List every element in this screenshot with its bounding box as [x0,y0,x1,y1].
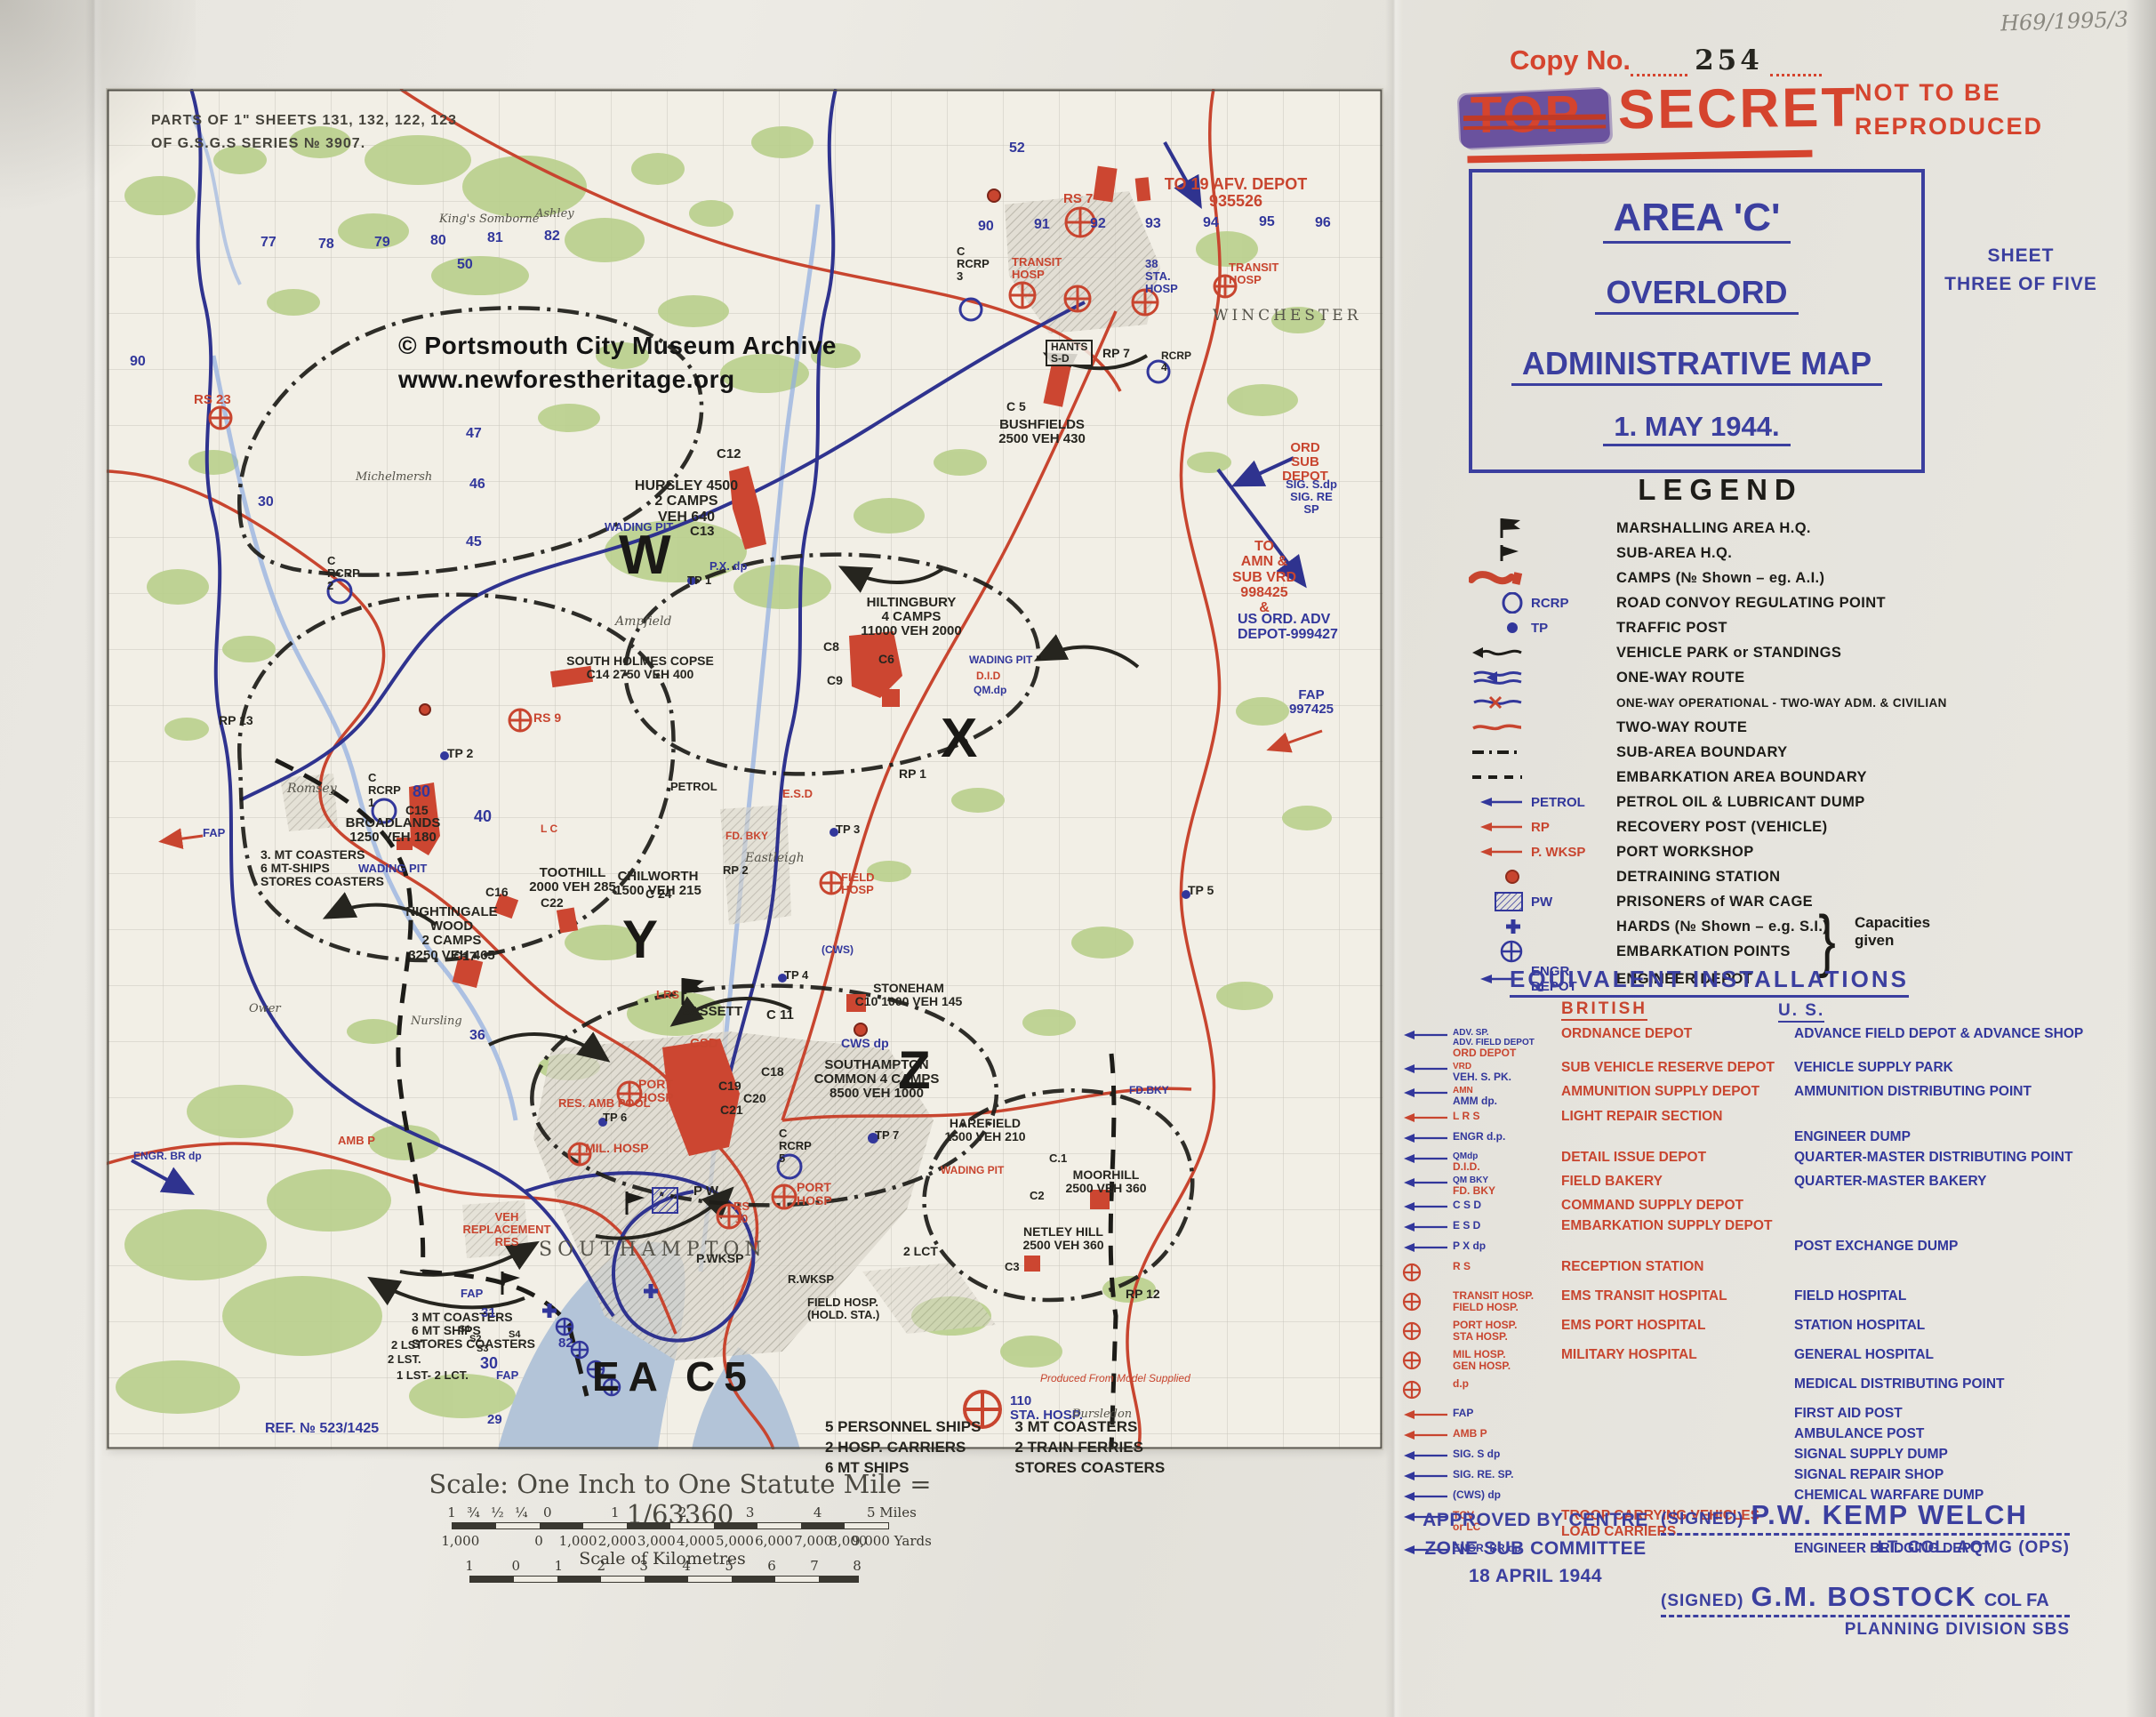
installation-abbr-main: SIG. RE. SP. [1453,1469,1561,1480]
map-label: VEH REPLACEMENT RES [463,1211,551,1248]
approval-note: APPROVED BY CENTRE ZONE SUB COMMITTEE 18… [1407,1506,1664,1591]
installation-row: C S DCOMMAND SUPPLY DEPOT [1401,1198,2144,1217]
map-label: 52 [1009,140,1025,156]
map-label: C21 [720,1103,743,1117]
map-label: 46 [469,477,485,492]
map-label: TP 7 [875,1129,899,1142]
scale-tick: 1,000 [559,1533,597,1549]
arrow-icon [1401,1406,1453,1424]
map-label: C16 [485,886,509,899]
us-installation: ADVANCE FIELD DEPOT & ADVANCE SHOP [1794,1026,2141,1042]
map-label: RP 1 [899,767,926,781]
legend-label: ONE-WAY ROUTE [1616,670,1745,686]
map-label: HAREFIELD 1500 VEH 210 [944,1117,1025,1143]
scale-tick: 8 [853,1558,862,1574]
scale-tick: 4,000 [677,1533,715,1549]
map-label: Produced From Model Supplied [1040,1373,1190,1384]
map-label: C20 [743,1092,766,1105]
scale-tick: 5 Miles [867,1504,917,1520]
installation-abbr-main: C S D [1453,1199,1561,1211]
british-installation: FIELD BAKERY [1561,1174,1794,1190]
scale-tick: ¼ [515,1504,528,1520]
map-label: 78 [318,237,334,252]
map-label: 38 STA. HOSP [1145,258,1178,295]
map-label: 92 [1090,216,1106,231]
british-installation: LIGHT REPAIR SECTION [1561,1109,1794,1125]
arrow-icon [1401,1198,1453,1216]
map-label: 81 [487,230,503,245]
map-label: 82 [544,229,560,244]
rdot-icon [1453,870,1531,884]
us-installation: FIELD HOSPITAL [1794,1288,2141,1304]
top-secret-stamp: TOP SECRET [1459,69,1824,165]
scale-tick: 4 [682,1558,691,1574]
map-labels-layer: 52TO 19 AFV. DEPOT 935526RS 7C RCRP 3TRA… [107,89,1383,1449]
ships-column-2: 3 MT COASTERS 2 TRAIN FERRIES STORES COA… [1014,1417,1165,1479]
arrow-icon [1401,1084,1453,1103]
map-label: EA C5 [592,1355,756,1400]
map-label: 77 [260,235,277,250]
map-label: C22 [541,896,564,910]
map-label: LRS [656,989,679,1001]
stamp-underline [1467,150,1812,164]
map-label: REF. № 523/1425 [265,1421,379,1436]
map-label: 79 [374,235,390,250]
map-label: Eastleigh [745,852,805,865]
scale-tick: 0 [543,1504,552,1520]
map-label: WINCHESTER [1213,308,1362,324]
scale-tick: ¾ [467,1504,480,1520]
installation-abbr: PORT HOSP. STA HOSP. [1453,1318,1561,1343]
map-label: RCRP 4 [1161,350,1191,373]
camp-icon [1453,569,1531,587]
installation-abbr-main: (CWS) dp [1453,1489,1561,1501]
us-column-header: U. S. [1778,1001,1824,1023]
map-label: PORT HOSP [797,1181,832,1208]
legend-row: HARDS (№ Shown – e.g. S.I.) [1453,914,2057,939]
ships-column-1: 5 PERSONNEL SHIPS 2 HOSP. CARRIERS 6 MT … [825,1417,981,1479]
installation-row: ENGR d.p.ENGINEER DUMP [1401,1129,2144,1149]
installation-abbr: TRANSIT HOSP. FIELD HOSP. [1453,1288,1561,1313]
legend-label: TWO-WAY ROUTE [1616,719,1747,736]
arrow-icon [1401,1129,1453,1148]
rcrp-icon [1453,592,1531,614]
installation-abbr-main: R S [1453,1261,1561,1272]
map-label: TO AMN & SUB VRD 998425 & [1232,539,1296,615]
map-sheet-page: 52TO 19 AFV. DEPOT 935526RS 7C RCRP 3TRA… [0,0,2156,1717]
scale-tick: 1 [465,1558,474,1574]
signatory-rank: COL FA [1984,1591,2049,1611]
map-label: RS 9 [533,711,561,725]
map-label: TRANSIT HOSP [1229,261,1278,286]
installation-abbr-main: FAP [1453,1408,1561,1419]
legend-row: DETRAINING STATION [1453,864,2057,889]
map-label: TP 4 [784,969,808,982]
installation-abbr-main: SIG. S dp [1453,1448,1561,1460]
map-label: RP 2 [723,864,749,877]
arrr-icon [1453,821,1531,833]
map-label: 82 [558,1336,573,1351]
map-label: 90 [130,354,146,369]
hospital-symbol-icon [1401,1259,1453,1288]
map-label: 45 [466,534,482,550]
map-label: RP 13 [219,714,253,727]
installation-abbr: ENGR d.p. [1453,1129,1561,1143]
installation-abbr-main: d.p [1453,1378,1561,1390]
legend-label: HARDS (№ Shown – e.g. S.I.) [1616,919,1828,935]
legend-label: SUB-AREA H.Q. [1616,545,1732,562]
scale-tick: 1 [447,1504,456,1520]
map-label: 93 [1145,216,1161,231]
installation-abbr: P X dp [1453,1239,1561,1252]
us-installation: GENERAL HOSPITAL [1794,1347,2141,1363]
installation-abbr: SIG. S dp [1453,1447,1561,1460]
signatory-name: P.W. KEMP WELCH [1751,1499,2028,1531]
british-installation: EMS TRANSIT HOSPITAL [1561,1288,1794,1304]
british-installation: MILITARY HOSPITAL [1561,1347,1794,1363]
installation-abbr-main: ENGR d.p. [1453,1131,1561,1143]
dashes-icon [1453,773,1531,782]
installation-abbr-main: PORT HOSP. STA HOSP. [1453,1320,1561,1343]
map-label: TP 6 [603,1111,627,1124]
pw-icon [1453,891,1531,912]
map-label: D.I.D [976,670,1000,682]
map-label: TO 19 AFV. DEPOT 935526 [1165,176,1307,211]
legend-row: TWO-WAY ROUTE [1453,715,2057,740]
us-installation: POST EXCHANGE DUMP [1794,1239,2141,1255]
dashdot-icon [1453,748,1531,757]
map-label: TOOTHILL 2000 VEH 285 [529,866,616,895]
legend-title: LEGEND [1511,473,1929,507]
map-label: 30 [258,494,274,509]
map-label: Nursling [411,1015,462,1028]
british-installation: SUB VEHICLE RESERVE DEPOT [1561,1060,1794,1076]
title-line: ADMINISTRATIVE MAP [1472,345,1921,382]
map-label: NIGHTINGALE WOOD 2 CAMPS 3250 VEH 465 [405,905,497,963]
map-label: FAP 997425 [1289,688,1334,717]
legend-row: MARSHALLING AREA H.Q. [1453,516,2057,541]
map-label: NETLEY HILL 2500 VEH 360 [1022,1225,1103,1252]
map-label: 95 [1259,214,1275,229]
installation-abbr-main: AMM dp. [1453,1095,1561,1107]
map-label: (CWS) [822,944,854,956]
map-label: 3 MT COASTERS 6 MT SHIPS STORES COASTERS [412,1311,535,1351]
scale-tick: 2 [597,1558,605,1574]
map-label: C18 [761,1065,784,1079]
scale-tick: ½ [491,1504,504,1520]
map-label: 2 LCT [903,1245,938,1258]
map-panel: 52TO 19 AFV. DEPOT 935526RS 7C RCRP 3TRA… [107,89,1383,1449]
installation-row: SIG. S dpSIGNAL SUPPLY DUMP [1401,1447,2144,1466]
map-label: HILTINGBURY 4 CAMPS 11000 VEH 2000 [861,596,961,639]
map-label: L C [541,823,557,835]
yards-ticks: 1,00001,0002,0003,0004,0005,0006,0007,00… [452,1533,887,1547]
map-label: 96 [1315,215,1331,230]
installation-row: AMB PAMBULANCE POST [1401,1426,2144,1446]
map-label: C RCRP 1 [368,772,401,809]
map-label: FD.BKY [1129,1085,1169,1096]
map-label: FAP [203,827,225,839]
legend-label: PETROL OIL & LUBRICANT DUMP [1616,794,1865,811]
installation-abbr: QMdpD.I.D. [1453,1150,1561,1173]
hospital-symbol-icon [1401,1347,1453,1376]
map-label: C RCRP 5 [779,1127,812,1165]
installation-row: QMdpD.I.D.DETAIL ISSUE DEPOTQUARTER-MAST… [1401,1150,2144,1173]
installation-abbr-main: P X dp [1453,1240,1561,1252]
us-installation: SIGNAL SUPPLY DUMP [1794,1447,2141,1463]
legend-row: P. WKSPPORT WORKSHOP [1453,839,2057,864]
map-label: FAP [496,1369,518,1382]
us-installation: ENGINEER DUMP [1794,1129,2141,1145]
arrow-icon [1401,1150,1453,1168]
signed-label: (SIGNED) [1661,1592,1744,1611]
map-label: C 5 [1006,400,1026,413]
archive-watermark: © Portsmouth City Museum Archive www.new… [398,329,837,397]
title-line: AREA 'C' [1472,196,1921,240]
legend-abbr: P. WKSP [1531,845,1616,860]
scale-tick: 7,000 [794,1533,832,1549]
map-label: C RCRP 3 [957,245,990,283]
arrow-icon [1401,1174,1453,1192]
installation-abbr: SIG. RE. SP. [1453,1467,1561,1480]
map-label: 90 [978,219,994,234]
map-label: 40 [474,808,492,825]
map-label: 94 [1203,215,1219,230]
title-line: 1. MAY 1944. [1472,411,1921,443]
legend-row: TPTRAFFIC POST [1453,615,2057,640]
flag2-icon [1453,543,1531,563]
arrow-icon [1401,1218,1453,1237]
map-label: 50 [457,257,473,272]
arrow-icon [1401,1060,1453,1079]
map-label: C19 [718,1079,741,1093]
arrr-icon [1453,846,1531,858]
legend-label: MARSHALLING AREA H.Q. [1616,520,1811,537]
installation-abbr-main: ORD DEPOT [1453,1047,1561,1059]
map-label: Michelmersh [356,471,432,484]
map-label: 80 [413,783,430,800]
legend-row: RCRPROAD CONVOY REGULATING POINT [1453,590,2057,615]
scale-tick: 5 [725,1558,733,1574]
signature-block-2: (SIGNED) G.M. BOSTOCK COL FA PLANNING DI… [1661,1581,2070,1640]
map-label: BASSETT [680,1005,742,1019]
legend-row: CAMPS (№ Shown – eg. A.I.) [1453,566,2057,590]
map-label: E.S.D [782,788,813,800]
map-label: Ower [249,1003,281,1015]
legend: MARSHALLING AREA H.Q.SUB-AREA H.Q.CAMPS … [1453,516,2057,994]
signed-label: (SIGNED) [1661,1510,1744,1529]
legend-label: SUB-AREA BOUNDARY [1616,744,1788,761]
installation-abbr-main: D.I.D. [1453,1161,1561,1173]
scale-tick: 0 [534,1533,543,1549]
twoway-icon [1453,721,1531,734]
map-label: CWS dp [841,1037,889,1050]
legend-row: PETROLPETROL OIL & LUBRICANT DUMP [1453,790,2057,814]
arrow-icon [1401,1026,1453,1045]
arrow-icon [1401,1239,1453,1257]
map-label: STONEHAM C10 1000 VEH 145 [855,982,963,1008]
map-label: 91 [1034,217,1050,232]
map-label: FD. BKY [725,830,768,842]
map-label: SIG. S.dp SIG. RE SP [1286,478,1337,516]
map-label: Z [898,1042,933,1100]
legend-label: VEHICLE PARK or STANDINGS [1616,645,1841,662]
oplus-icon [1453,939,1531,964]
installation-row: L R SLIGHT REPAIR SECTION [1401,1109,2144,1128]
installation-row: VRDVEH. S. PK.SUB VEHICLE RESERVE DEPOTV… [1401,1060,2144,1083]
map-label: TP 3 [836,823,860,836]
installation-row: R SRECEPTION STATION [1401,1259,2144,1288]
us-installation: STATION HOSPITAL [1794,1318,2141,1334]
legend-label: RECOVERY POST (VEHICLE) [1616,819,1828,836]
legend-row: RPRECOVERY POST (VEHICLE) [1453,814,2057,839]
sheet-number-note: SHEET THREE OF FIVE [1928,242,2114,298]
miles-bar [452,1522,889,1529]
map-label: W [619,526,673,586]
map-label: ENGR. BR dp [133,1151,202,1162]
map-label: RP 7 [1102,347,1130,360]
installation-row: MIL HOSP. GEN HOSP.MILITARY HOSPITALGENE… [1401,1347,2144,1376]
scale-tick: 3 [639,1558,648,1574]
legend-row: PWPRISONERS of WAR CAGE [1453,889,2057,914]
map-label: RS 23 [194,393,231,407]
legend-row: EMBARKATION AREA BOUNDARY [1453,765,2057,790]
signature-block-1: (SIGNED) P.W. KEMP WELCH LT. COL. AQMG (… [1661,1499,2070,1558]
arrb-icon [1453,796,1531,808]
legend-row: SUB-AREA BOUNDARY [1453,740,2057,765]
installation-abbr: FAP [1453,1406,1561,1419]
arrow-icon [1401,1447,1453,1465]
installation-abbr-main: FD. BKY [1453,1185,1561,1197]
map-label: P W [693,1184,718,1199]
scale-tick: 3 [746,1504,755,1520]
title-box: AREA 'C'OVERLORDADMINISTRATIVE MAP1. MAY… [1469,169,1925,473]
scale-tick: 3,000 [637,1533,676,1549]
legend-label: EMBARKATION POINTS [1616,943,1791,960]
map-label: Y [622,911,660,969]
legend-row: ONE-WAY ROUTE [1453,665,2057,690]
legend-label: TRAFFIC POST [1616,620,1727,637]
scale-tick: 2 [678,1504,687,1520]
scale-tick: 2,000 [598,1533,637,1549]
map-label: RS 10 [733,1200,749,1225]
installation-row: PORT HOSP. STA HOSP.EMS PORT HOSPITALSTA… [1401,1318,2144,1346]
km-ticks: 1012345678 [469,1558,857,1572]
map-label: AMB P [338,1135,375,1147]
installation-abbr: (CWS) dp [1453,1488,1561,1501]
map-label: 47 [466,426,482,441]
installation-abbr: L R S [1453,1109,1561,1122]
map-label: 3. MT COASTERS 6 MT-SHIPS STORES COASTER… [260,848,384,888]
scale-tick: 5,000 [716,1533,754,1549]
map-label: Ampfield [615,615,671,629]
legend-row: EMBARKATION POINTS [1453,939,2057,964]
legend-abbr: PETROL [1531,795,1616,810]
legend-label: ROAD CONVOY REGULATING POINT [1616,595,1886,612]
map-label: C8 [823,640,839,654]
map-label: 2 LST. [388,1353,421,1366]
installation-abbr-main: L R S [1453,1111,1561,1122]
map-label: US ORD. ADV DEPOT-999427 [1238,612,1338,643]
not-to-be-reproduced: NOT TO BE REPRODUCED [1855,76,2043,144]
map-label: CSD [690,1037,718,1051]
map-label: C3 [1005,1261,1020,1273]
map-label: SOUTH HOLMES COPSE C14 2750 VEH 400 [566,654,714,681]
installation-row: QM BKYFD. BKYFIELD BAKERYQUARTER-MASTER … [1401,1174,2144,1197]
miles-ticks: 1¾½¼012345 Miles [452,1504,887,1519]
installation-abbr-main: E S D [1453,1220,1561,1232]
us-installation: FIRST AID POST [1794,1406,2141,1422]
map-label: QM.dp [974,685,1006,696]
map-label: WADING PIT [969,654,1032,666]
legend-label: PRISONERS of WAR CAGE [1616,894,1813,911]
installation-row: E S DEMBARKATION SUPPLY DEPOT [1401,1218,2144,1238]
source-sheets-note: PARTS OF 1" SHEETS 131, 132, 122, 123 OF… [151,109,457,155]
oneway-icon [1453,668,1531,687]
installation-row: d.pMEDICAL DISTRIBUTING POINT [1401,1376,2144,1405]
legend-label: EMBARKATION AREA BOUNDARY [1616,769,1867,786]
map-label: C13 [690,525,715,539]
map-label: C 24 [645,887,672,901]
hospital-symbol-icon [1401,1376,1453,1405]
legend-row: VEHICLE PARK or STANDINGS [1453,640,2057,665]
legend-abbr: PW [1531,895,1616,910]
map-label: BROADLANDS 1250 VEH 180 [346,816,441,845]
installation-abbr-main: TRANSIT HOSP. FIELD HOSP. [1453,1290,1561,1313]
map-label: R.WKSP [788,1273,834,1286]
british-installation: ORDNANCE DEPOT [1561,1026,1794,1042]
installation-abbr: AMNAMM dp. [1453,1084,1561,1107]
installation-abbr-main: VEH. S. PK. [1453,1071,1561,1083]
tp-icon [1453,622,1531,634]
paper-fold [85,0,103,1717]
map-label: 80 [430,233,446,248]
map-label: MOORHILL 2500 VEH 360 [1065,1168,1146,1195]
map-label: C.1 [1049,1152,1067,1165]
installation-row: FAPFIRST AID POST [1401,1406,2144,1425]
us-installation: VEHICLE SUPPLY PARK [1794,1060,2141,1076]
map-label: HANTS S-D [1046,340,1093,366]
british-installation: AMMUNITION SUPPLY DEPOT [1561,1084,1794,1100]
legend-label: CAMPS (№ Shown – eg. A.I.) [1616,570,1824,587]
scale-tick: 1 [554,1558,563,1574]
arrow-icon [1401,1426,1453,1445]
us-installation: AMBULANCE POST [1794,1426,2141,1442]
stamp-secret-word: SECRET [1618,76,1858,141]
archive-reference: H69/1995/3 [2000,6,2129,36]
map-label: TP 2 [447,747,473,760]
map-label: MIL. HOSP [585,1142,649,1155]
map-label: 29 [487,1413,502,1427]
map-label: C 11 [766,1008,794,1023]
map-label: 1 LST- 2 LCT. [397,1369,469,1382]
map-label: C9 [827,674,843,687]
us-installation: AMMUNITION DISTRIBUTING POINT [1794,1084,2141,1100]
legend-label: PORT WORKSHOP [1616,844,1754,861]
scale-tick: 1,000 [441,1533,479,1549]
shipping-capacity-note: 5 PERSONNEL SHIPS 2 HOSP. CARRIERS 6 MT … [825,1417,1165,1479]
scale-tick: 4 [814,1504,822,1520]
british-installation: COMMAND SUPPLY DEPOT [1561,1198,1794,1214]
scale-tick: 9,000 Yards [852,1533,932,1549]
map-label: X [941,710,979,769]
map-label: C6 [878,653,894,666]
legend-label: ONE-WAY OPERATIONAL - TWO-WAY ADM. & CIV… [1616,696,1947,710]
arrow-icon [1401,1109,1453,1127]
installation-abbr-main: AMB P [1453,1428,1561,1440]
vpark-icon [1453,646,1531,660]
legend-abbr: RCRP [1531,596,1616,611]
